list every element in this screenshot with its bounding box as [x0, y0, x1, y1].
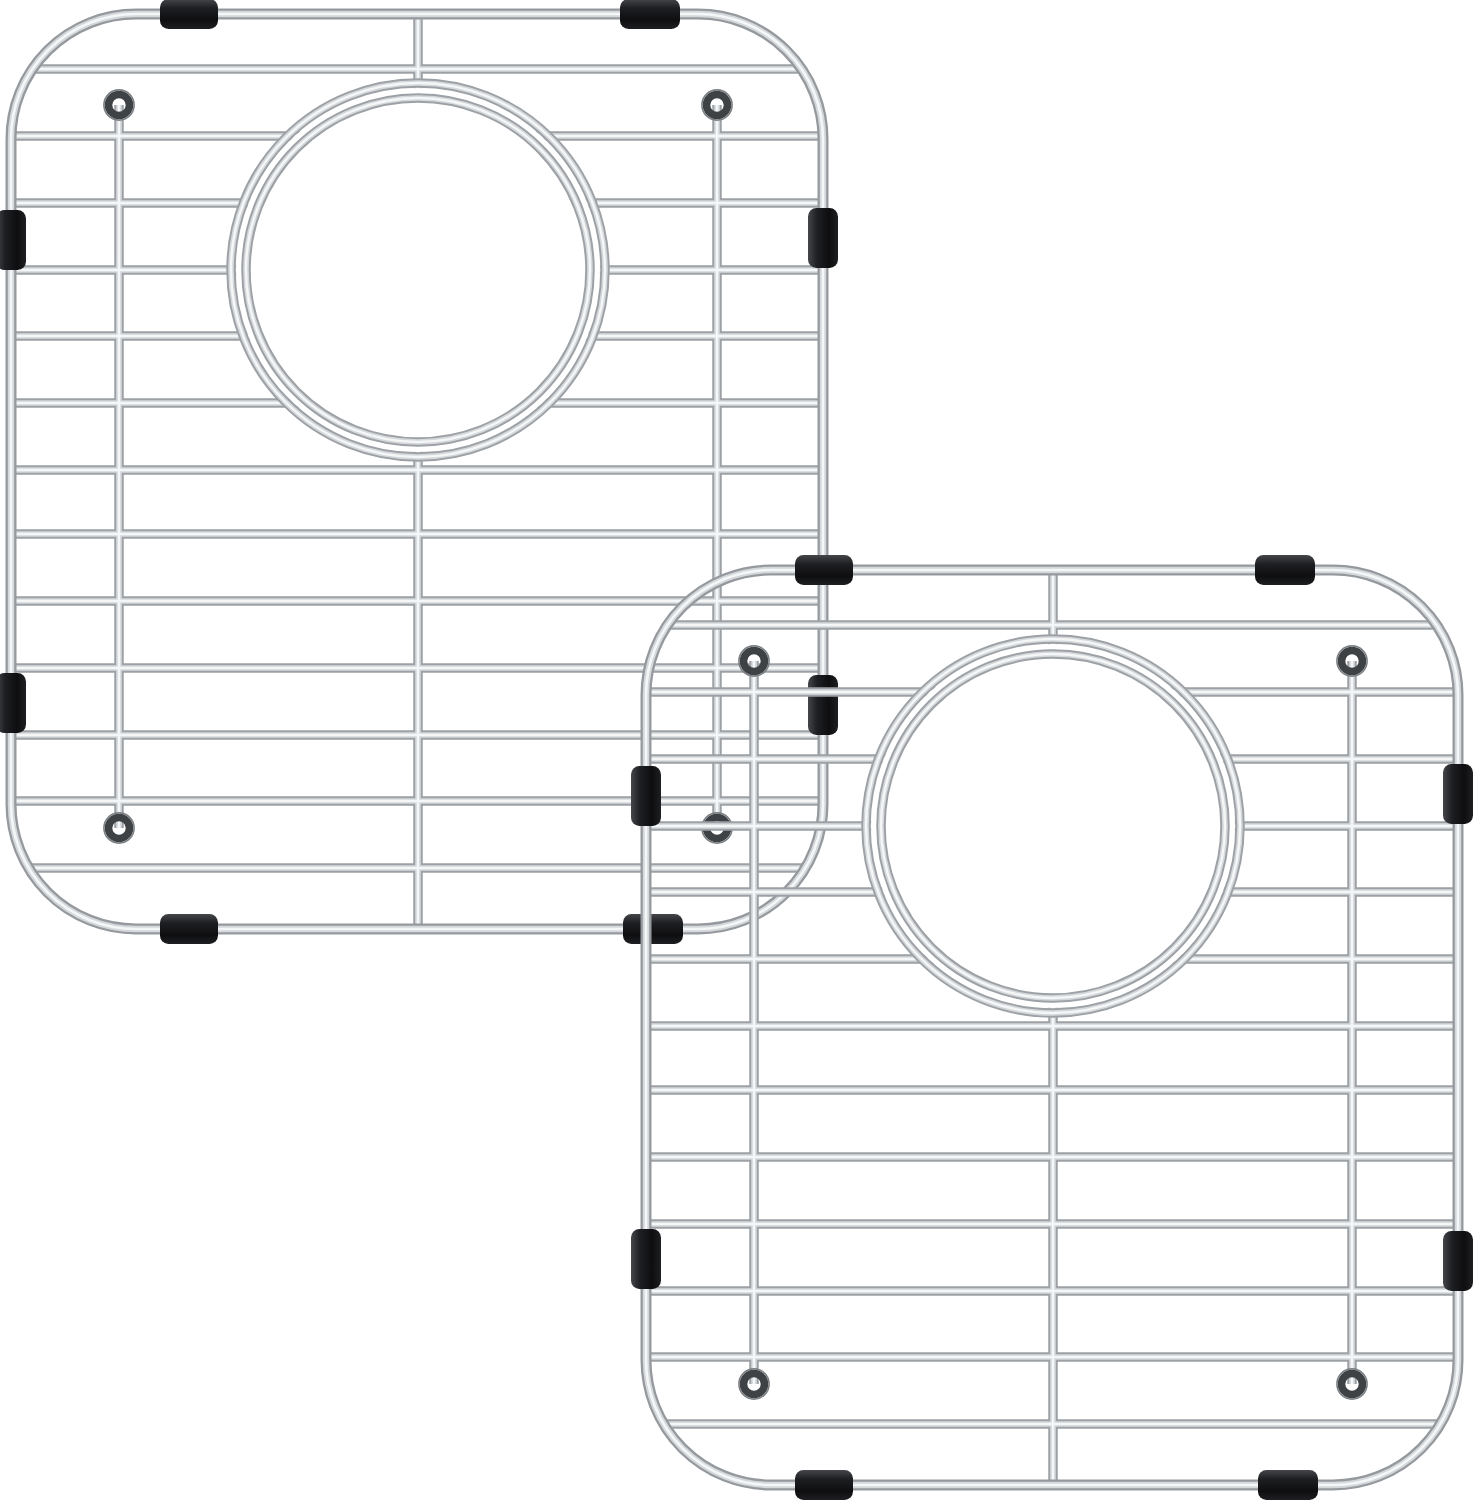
rubber-bumper-right: [1443, 1231, 1473, 1291]
sink-grids-svg: [0, 0, 1475, 1500]
sink-grids-artwork: [0, 0, 1475, 1500]
product-image: [0, 0, 1475, 1500]
drain-opening-hole: [871, 644, 1235, 1008]
rubber-bumper-left: [631, 1229, 661, 1289]
rubber-bumper-top: [160, 0, 218, 29]
rubber-bumper-right: [1443, 764, 1473, 824]
rubber-bumper-top: [1255, 555, 1315, 585]
rubber-bumper-left: [0, 673, 26, 733]
drain-opening-hole: [236, 88, 600, 452]
rubber-bumper-left: [631, 766, 661, 826]
rubber-bumper-right: [808, 675, 838, 735]
white-background: [0, 0, 1475, 1500]
rubber-bumper-bottom: [795, 1470, 853, 1500]
rubber-bumper-left: [0, 210, 26, 270]
rubber-bumper-top: [620, 0, 680, 29]
sink-grid-front: [631, 555, 1473, 1500]
rubber-bumper-bottom: [1258, 1470, 1318, 1500]
rubber-bumper-top: [795, 555, 853, 585]
rubber-bumper-bottom: [160, 914, 218, 944]
rubber-bumper-right: [808, 208, 838, 268]
rubber-bumper-bottom: [623, 914, 683, 944]
